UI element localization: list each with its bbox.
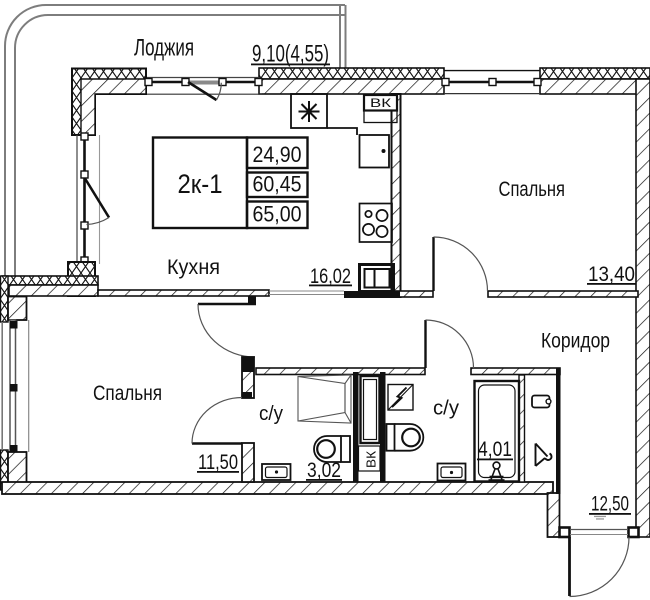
svg-text:3,02: 3,02 [307, 459, 341, 482]
svg-text:ВК: ВК [365, 450, 379, 468]
svg-text:Кухня: Кухня [167, 256, 220, 279]
svg-text:2к-1: 2к-1 [178, 169, 223, 199]
svg-text:13,40: 13,40 [588, 263, 635, 286]
svg-text:4,01: 4,01 [478, 438, 512, 461]
svg-text:65,00: 65,00 [253, 202, 302, 227]
svg-text:11,50: 11,50 [198, 451, 238, 474]
svg-text:12,50: 12,50 [591, 493, 629, 516]
svg-text:60,45: 60,45 [253, 172, 302, 197]
svg-text:24,90: 24,90 [253, 142, 302, 167]
svg-text:Коридор: Коридор [541, 330, 610, 353]
svg-text:Спальня: Спальня [93, 382, 162, 405]
svg-text:Лоджия: Лоджия [134, 35, 194, 62]
svg-text:9,10(4,55): 9,10(4,55) [252, 41, 329, 68]
svg-text:Спальня: Спальня [499, 178, 566, 201]
svg-text:ВК: ВК [370, 96, 391, 110]
svg-text:с/у: с/у [433, 398, 459, 420]
svg-text:с/у: с/у [259, 403, 283, 425]
